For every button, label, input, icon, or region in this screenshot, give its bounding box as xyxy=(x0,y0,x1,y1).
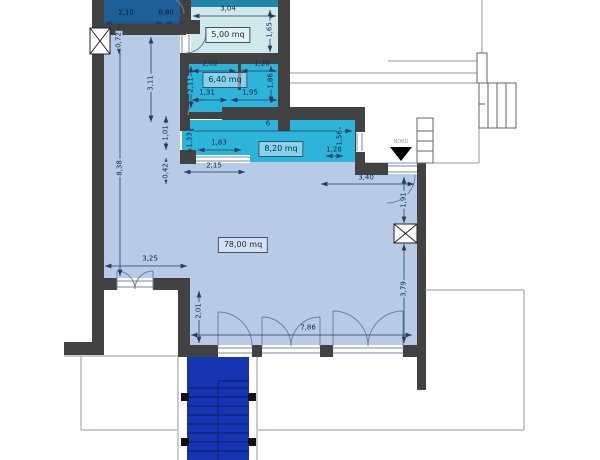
dim-label: 1,20 xyxy=(253,61,271,68)
exterior-stairs-entry xyxy=(417,118,433,163)
dim-label: 1,95 xyxy=(241,90,259,97)
linework-layer xyxy=(0,0,600,460)
dim-label: 1,83 xyxy=(210,140,228,147)
exterior-stairs-top-right xyxy=(479,83,516,128)
dim-label: 8,38 xyxy=(117,159,124,177)
dim-label: 2,02 xyxy=(201,61,219,68)
north-arrow-icon xyxy=(390,147,412,161)
staircase-steps xyxy=(187,381,249,460)
dim-label: 7,86 xyxy=(299,325,317,332)
dim-label: 3,04 xyxy=(219,6,237,13)
room-label-6mq: 6,40 mq xyxy=(202,72,247,88)
dim-label: 1,65 xyxy=(267,21,274,39)
dim-label: 1,91 xyxy=(401,191,408,209)
dim-label: 0,72 xyxy=(116,31,123,49)
dim-label: 1,01 xyxy=(163,124,170,142)
north-label: NORD xyxy=(394,139,409,145)
dim-label: 2,10 xyxy=(117,10,135,17)
room-label-8mq: 8,20 mq xyxy=(258,141,303,157)
dim-label: 1,28 xyxy=(325,147,343,154)
room-label-78mq: 78,00 mq xyxy=(218,237,268,253)
exterior-pillar xyxy=(477,53,487,83)
pillar-x-box-left xyxy=(90,28,110,54)
dim-label: 0,80 xyxy=(157,10,175,17)
exterior-terrace-outlines xyxy=(64,0,524,460)
dim-label: 1,56 xyxy=(337,129,344,147)
dim-label: 2,15 xyxy=(205,163,223,170)
dim-label: 2,11 xyxy=(188,76,195,94)
floor-plan-canvas: 2,10 0,80 3,04 1,65 0,72 3,11 8,38 1,01 … xyxy=(0,0,600,460)
room-label-5mq: 5,00 mq xyxy=(205,27,250,43)
dim-label: 0,42 xyxy=(163,162,170,180)
dim-label: 3,25 xyxy=(141,256,159,263)
dim-label: 6 xyxy=(265,121,271,128)
dim-label: 3,40 xyxy=(357,175,375,182)
dim-label: 1,86 xyxy=(268,72,275,90)
dim-label: 3,79 xyxy=(401,280,408,298)
dim-label: 1,33 xyxy=(187,131,194,149)
pillar-x-box-right xyxy=(394,224,417,243)
dim-label: 2,01 xyxy=(196,302,203,320)
dim-label: 1,31 xyxy=(198,90,216,97)
dim-label: 3,11 xyxy=(148,74,155,92)
